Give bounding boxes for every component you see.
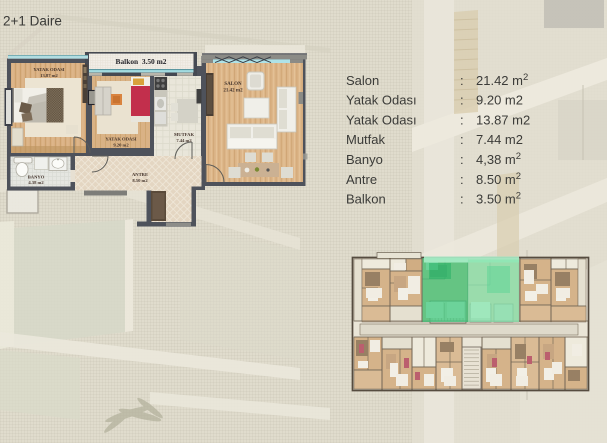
svg-text:YATAK ODASI: YATAK ODASI	[105, 137, 136, 142]
svg-text:8.50 m2: 8.50 m2	[132, 178, 148, 183]
svg-text:9.20 m2: 9.20 m2	[113, 143, 129, 148]
svg-text::: :	[460, 73, 464, 88]
svg-text:2+1 Daire: 2+1 Daire	[3, 14, 62, 29]
svg-text::: :	[460, 192, 464, 207]
svg-text:Balkon 3.50 m2: Balkon 3.50 m2	[116, 57, 167, 66]
svg-text:9.20 m2: 9.20 m2	[476, 93, 523, 108]
svg-text::: :	[460, 132, 464, 147]
svg-text::: :	[460, 172, 464, 187]
svg-text:Salon: Salon	[346, 73, 379, 88]
svg-text:21.42 m2: 21.42 m2	[476, 72, 528, 88]
svg-text:7.44 m2: 7.44 m2	[176, 138, 192, 143]
svg-text:21.42 m2: 21.42 m2	[223, 89, 243, 94]
svg-text:MUTFAK: MUTFAK	[174, 132, 194, 137]
svg-text:13.87 m2: 13.87 m2	[476, 112, 530, 127]
svg-text:Mutfak: Mutfak	[346, 132, 386, 147]
svg-text:Yatak Odası: Yatak Odası	[346, 93, 417, 108]
svg-text:4.38 m2: 4.38 m2	[28, 180, 44, 185]
svg-text::: :	[460, 152, 464, 167]
svg-text:3.50 m2: 3.50 m2	[476, 191, 521, 207]
svg-text:YATAK ODASI: YATAK ODASI	[33, 67, 64, 72]
svg-text:SALON: SALON	[224, 82, 242, 87]
svg-text:8.50 m2: 8.50 m2	[476, 171, 521, 187]
svg-text:7.44 m2: 7.44 m2	[476, 132, 523, 147]
svg-text:Balkon: Balkon	[346, 192, 386, 207]
svg-text:13.87 m2: 13.87 m2	[40, 73, 58, 78]
svg-text::: :	[460, 112, 464, 127]
svg-text:ANTRE: ANTRE	[132, 172, 148, 177]
svg-text:Yatak Odası: Yatak Odası	[346, 112, 417, 127]
svg-text:Banyo: Banyo	[346, 152, 383, 167]
svg-text:Antre: Antre	[346, 172, 377, 187]
svg-text:BANYO: BANYO	[28, 175, 45, 180]
svg-text:4,38 m2: 4,38 m2	[476, 151, 521, 167]
svg-text::: :	[460, 93, 464, 108]
